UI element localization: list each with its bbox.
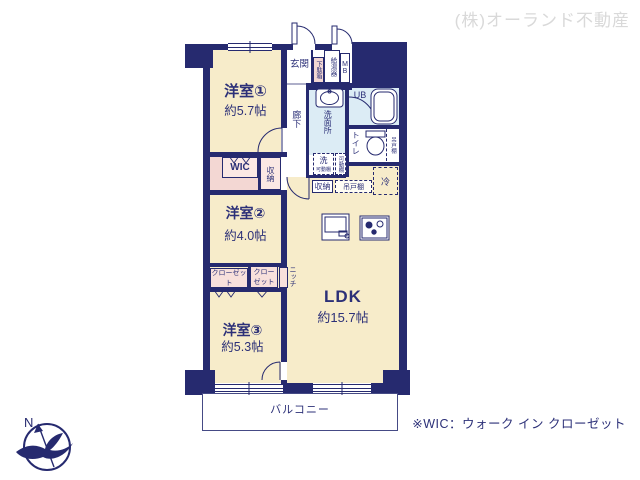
- wic-footnote: ※WIC：ウォーク イン クローゼット: [326, 417, 626, 431]
- bedroom1-size: 約5.7帖: [210, 104, 281, 118]
- ldk-size: 約15.7帖: [287, 311, 399, 326]
- ldk-door-icon: [287, 177, 309, 199]
- balcony-label: バルコニー: [202, 404, 398, 417]
- compass-north-label: N: [24, 415, 33, 430]
- washbasin-icon: [316, 89, 343, 107]
- compass: N: [16, 415, 73, 470]
- company-watermark: (株)オーランド不動産: [330, 11, 630, 31]
- toilet-icon: [366, 131, 385, 155]
- washroom-label: 洗面所: [323, 110, 332, 134]
- floorplan-canvas: WIC 収納 下駄箱 給湯器 MB クローゼット クローゼット 洗 可動棚 可動…: [0, 0, 640, 480]
- bedroom2-size: 約4.0帖: [210, 229, 281, 243]
- bedroom2-name: 洋室②: [210, 205, 281, 221]
- toilet-label: トイレ: [351, 131, 360, 155]
- entrance-label: 玄関: [287, 60, 312, 71]
- bedroom3-name: 洋室③: [207, 322, 278, 338]
- bedroom3-door-icon: [262, 362, 280, 380]
- kitchen-sink-icon: [322, 214, 349, 240]
- bedroom3-size: 約5.3帖: [207, 340, 278, 354]
- bath-label: UB: [351, 90, 369, 100]
- niche-label: ニッチ: [288, 266, 296, 287]
- bathtub-icon: [371, 89, 397, 124]
- closet-fold-marks: [214, 156, 268, 297]
- bedroom1-name: 洋室①: [210, 83, 281, 100]
- stove-icon: [360, 216, 389, 240]
- hallway-label: 廊下: [291, 110, 301, 128]
- bedroom1-door-icon: [258, 128, 282, 152]
- ldk-name: LDK: [287, 287, 399, 307]
